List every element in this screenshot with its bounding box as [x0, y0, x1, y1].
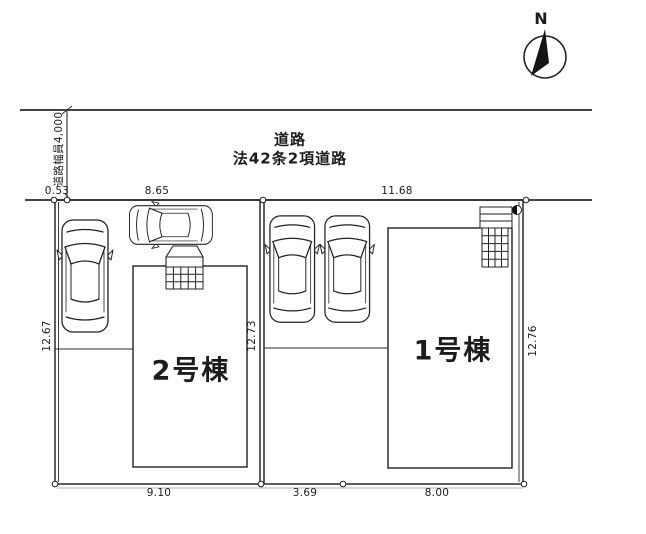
car-icon — [129, 201, 212, 248]
site-plan-drawing — [0, 0, 646, 534]
dimension-rear-right: 8.00 — [425, 488, 450, 499]
building-1-label: 1号棟 — [414, 338, 493, 365]
road-classification-label: 法42条2項道路 — [233, 152, 347, 167]
building-2-label: 2号棟 — [152, 358, 231, 385]
utility-marker-icon — [513, 206, 522, 215]
site-plan: N 道路 法42条2項道路 道路幅員4,000 0.53 8.65 11.68 … — [0, 0, 646, 534]
building-1-stairs — [480, 207, 512, 228]
north-compass-icon — [524, 29, 566, 78]
car-icon — [265, 216, 319, 322]
car-icon — [57, 220, 113, 332]
car-icon — [320, 216, 374, 322]
dimension-frontage-right: 11.68 — [381, 186, 413, 197]
north-label: N — [534, 11, 547, 27]
dimension-depth-right: 12.76 — [528, 325, 539, 357]
building-2-entrance-steps — [166, 267, 203, 289]
dimension-rear-center: 3.69 — [293, 488, 318, 499]
dimension-depth-center: 12.73 — [247, 320, 258, 352]
dimension-frontage-left: 8.65 — [145, 186, 170, 197]
road-width-label: 道路幅員4,000 — [54, 112, 65, 187]
dimension-rear-left: 9.10 — [147, 488, 172, 499]
dimension-setback: 0.53 — [45, 186, 70, 197]
road-name-label: 道路 — [274, 133, 306, 148]
dimension-depth-left: 12.67 — [42, 320, 53, 352]
building-1-entrance-steps — [482, 228, 508, 267]
